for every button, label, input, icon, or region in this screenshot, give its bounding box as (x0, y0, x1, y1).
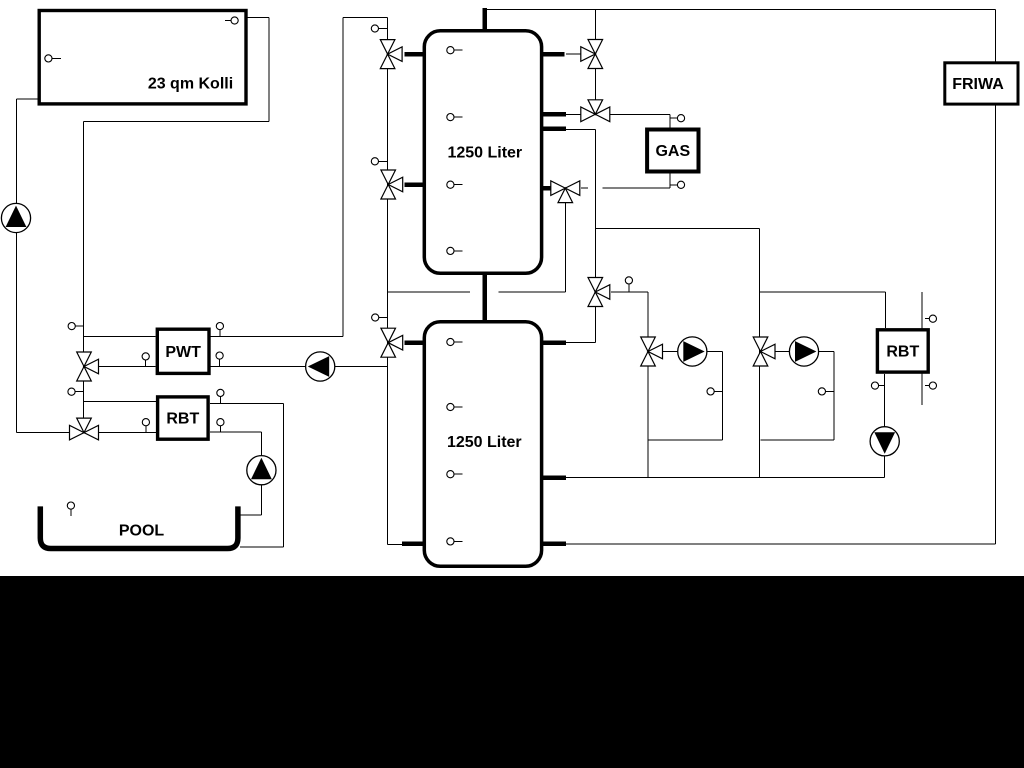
svg-text:RBT: RBT (166, 411, 199, 428)
svg-text:1250 Liter: 1250 Liter (447, 145, 522, 162)
svg-text:PWT: PWT (165, 344, 201, 361)
svg-text:1250 Liter: 1250 Liter (447, 434, 522, 451)
svg-text:GAS: GAS (655, 143, 690, 160)
svg-text:RBT: RBT (886, 344, 919, 361)
svg-text:FRIWA: FRIWA (952, 76, 1004, 93)
svg-text:23 qm Kolli: 23 qm Kolli (148, 76, 233, 93)
svg-text:POOL: POOL (119, 523, 165, 540)
